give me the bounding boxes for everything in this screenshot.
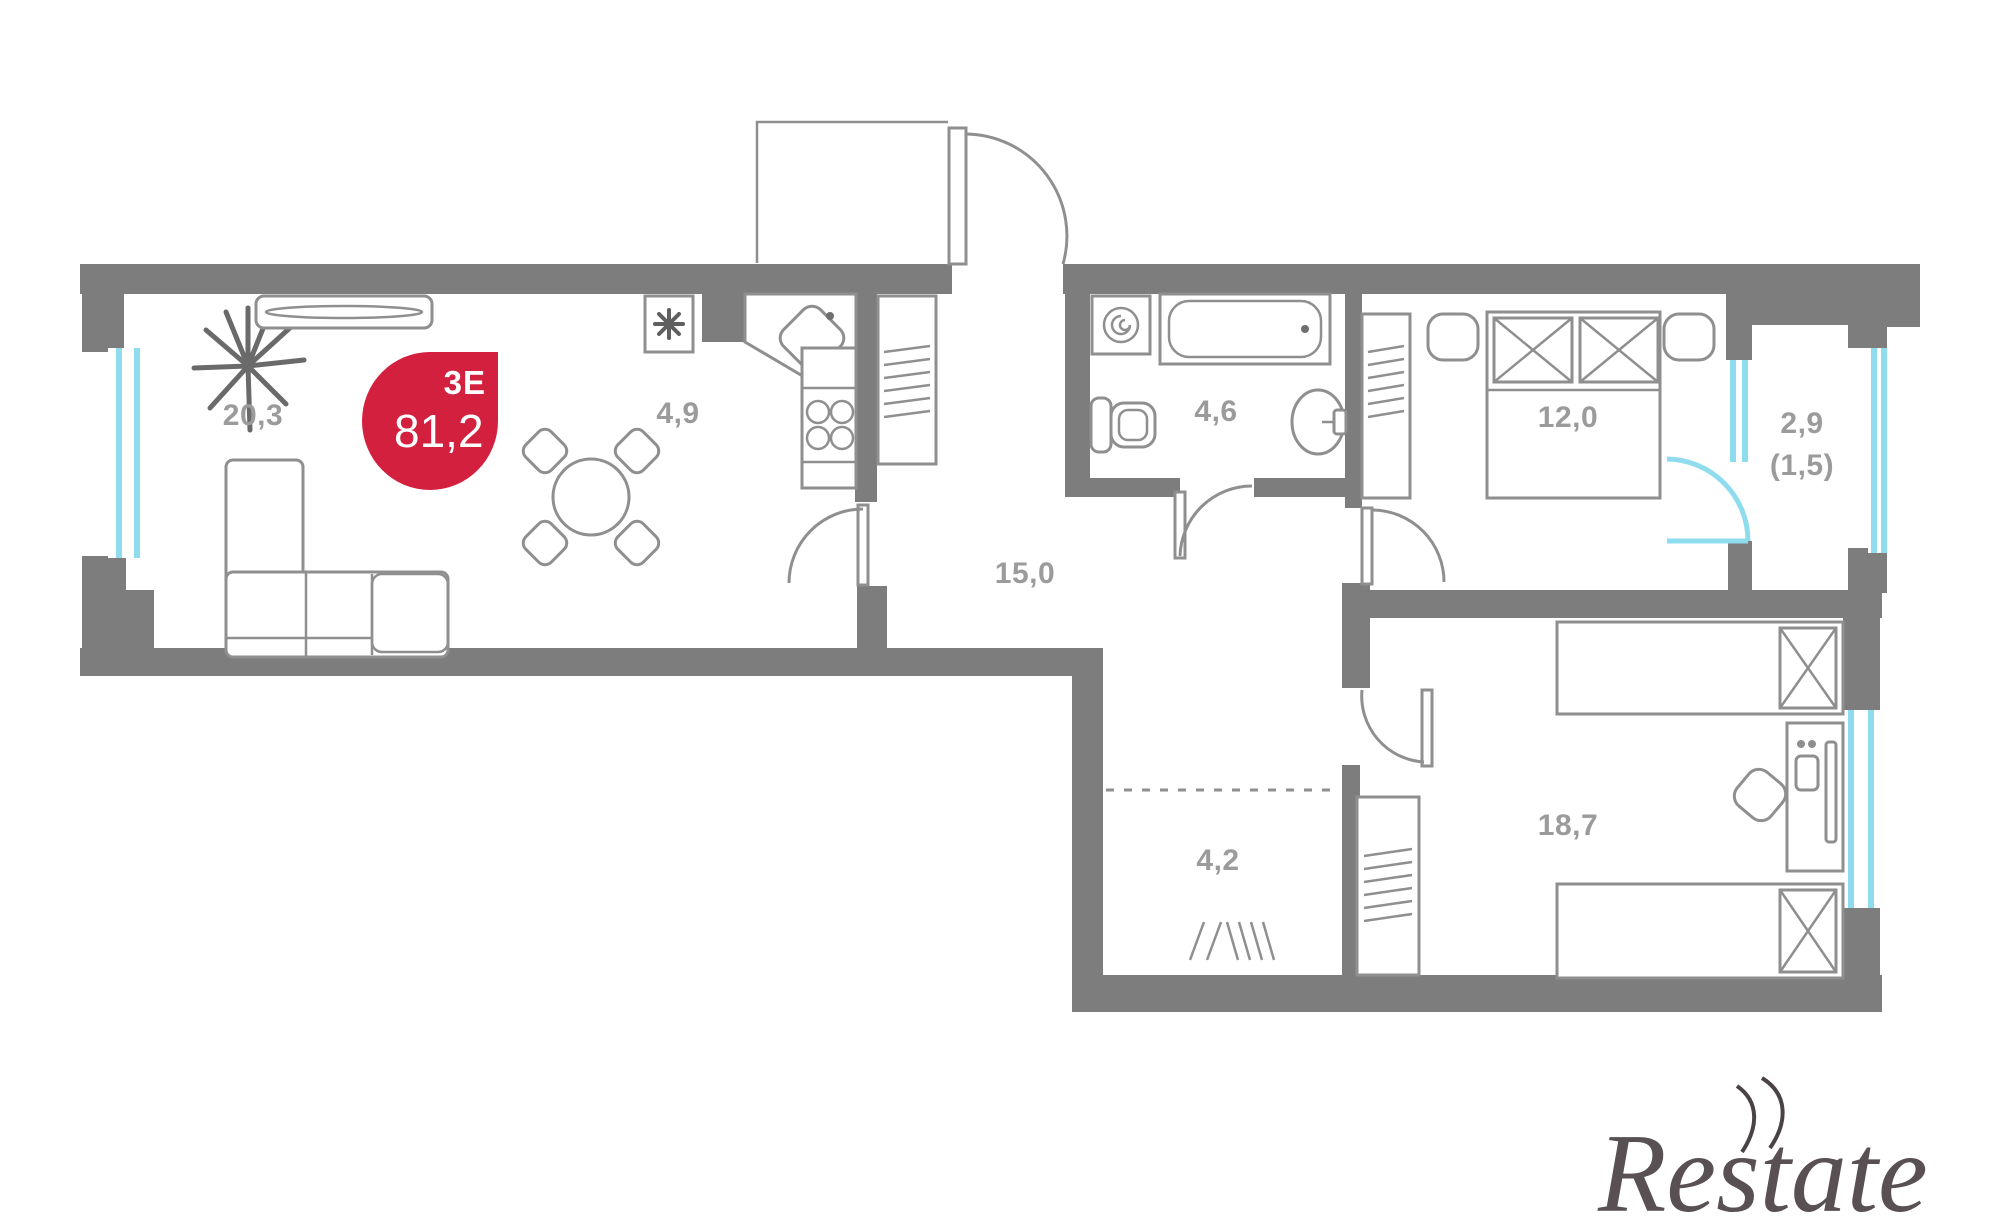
single-bed-bottom: [1557, 884, 1843, 978]
watermark-text: Restate: [1598, 1118, 1928, 1223]
apartment-type-label: 3E: [444, 364, 486, 402]
living-room-area-label: 20,3: [223, 399, 283, 433]
floor-plan: 20,3 4,9 15,0 4,6 12,0 2,9 (1,5) 4,2 18,…: [0, 0, 2000, 1223]
single-bed-top: [1557, 622, 1843, 714]
apartment-badge: 3E 81,2: [362, 352, 498, 490]
desk: [1787, 723, 1843, 871]
bedroom-1-door: [1362, 508, 1444, 584]
bedroom-1-area-label: 12,0: [1538, 401, 1598, 435]
living-room-window: [108, 348, 152, 558]
bedroom-2-area-label: 18,7: [1538, 809, 1598, 843]
washbasin: [1292, 390, 1346, 454]
apartment-total-area: 81,2: [394, 404, 484, 458]
bedroom-2-wardrobe: [1357, 797, 1419, 975]
entrance-door: [757, 122, 1067, 264]
kitchen-area-label: 4,9: [656, 397, 699, 431]
bathroom-area-label: 4,6: [1194, 395, 1237, 429]
nightstand-right: [1664, 314, 1714, 360]
kitchen-vent-icon: [645, 296, 693, 352]
bedroom-1-wardrobe: [1362, 314, 1410, 498]
toilet: [1091, 398, 1155, 452]
balcony-window-right: [1868, 348, 1890, 553]
dining-table: [520, 426, 663, 569]
bedroom-2-window: [1843, 710, 1880, 908]
floor-plan-drawing: [0, 0, 2000, 1223]
bedroom-2-door: [1362, 690, 1432, 766]
bathroom-door: [1175, 486, 1252, 558]
floor-hatch-marks: [1190, 922, 1274, 960]
bathtub: [1160, 294, 1330, 364]
nightstand-left: [1428, 314, 1478, 360]
kitchen-shaft: [702, 294, 745, 342]
washing-machine: [1092, 296, 1150, 354]
balcony-door: [1667, 459, 1748, 541]
desk-chair: [1729, 764, 1791, 826]
kitchen-stove: [802, 348, 856, 488]
sideboard: [256, 296, 432, 328]
hallway-wardrobe: [878, 296, 936, 464]
hallway-area-label: 15,0: [995, 557, 1055, 591]
balcony-window-left: [1726, 360, 1752, 462]
dressing-area-label: 4,2: [1196, 844, 1239, 878]
kitchen-door: [789, 505, 868, 585]
sofa: [226, 460, 448, 657]
balcony-area-label: 2,9: [1780, 407, 1823, 441]
balcony-reduced-area-label: (1,5): [1770, 449, 1834, 483]
